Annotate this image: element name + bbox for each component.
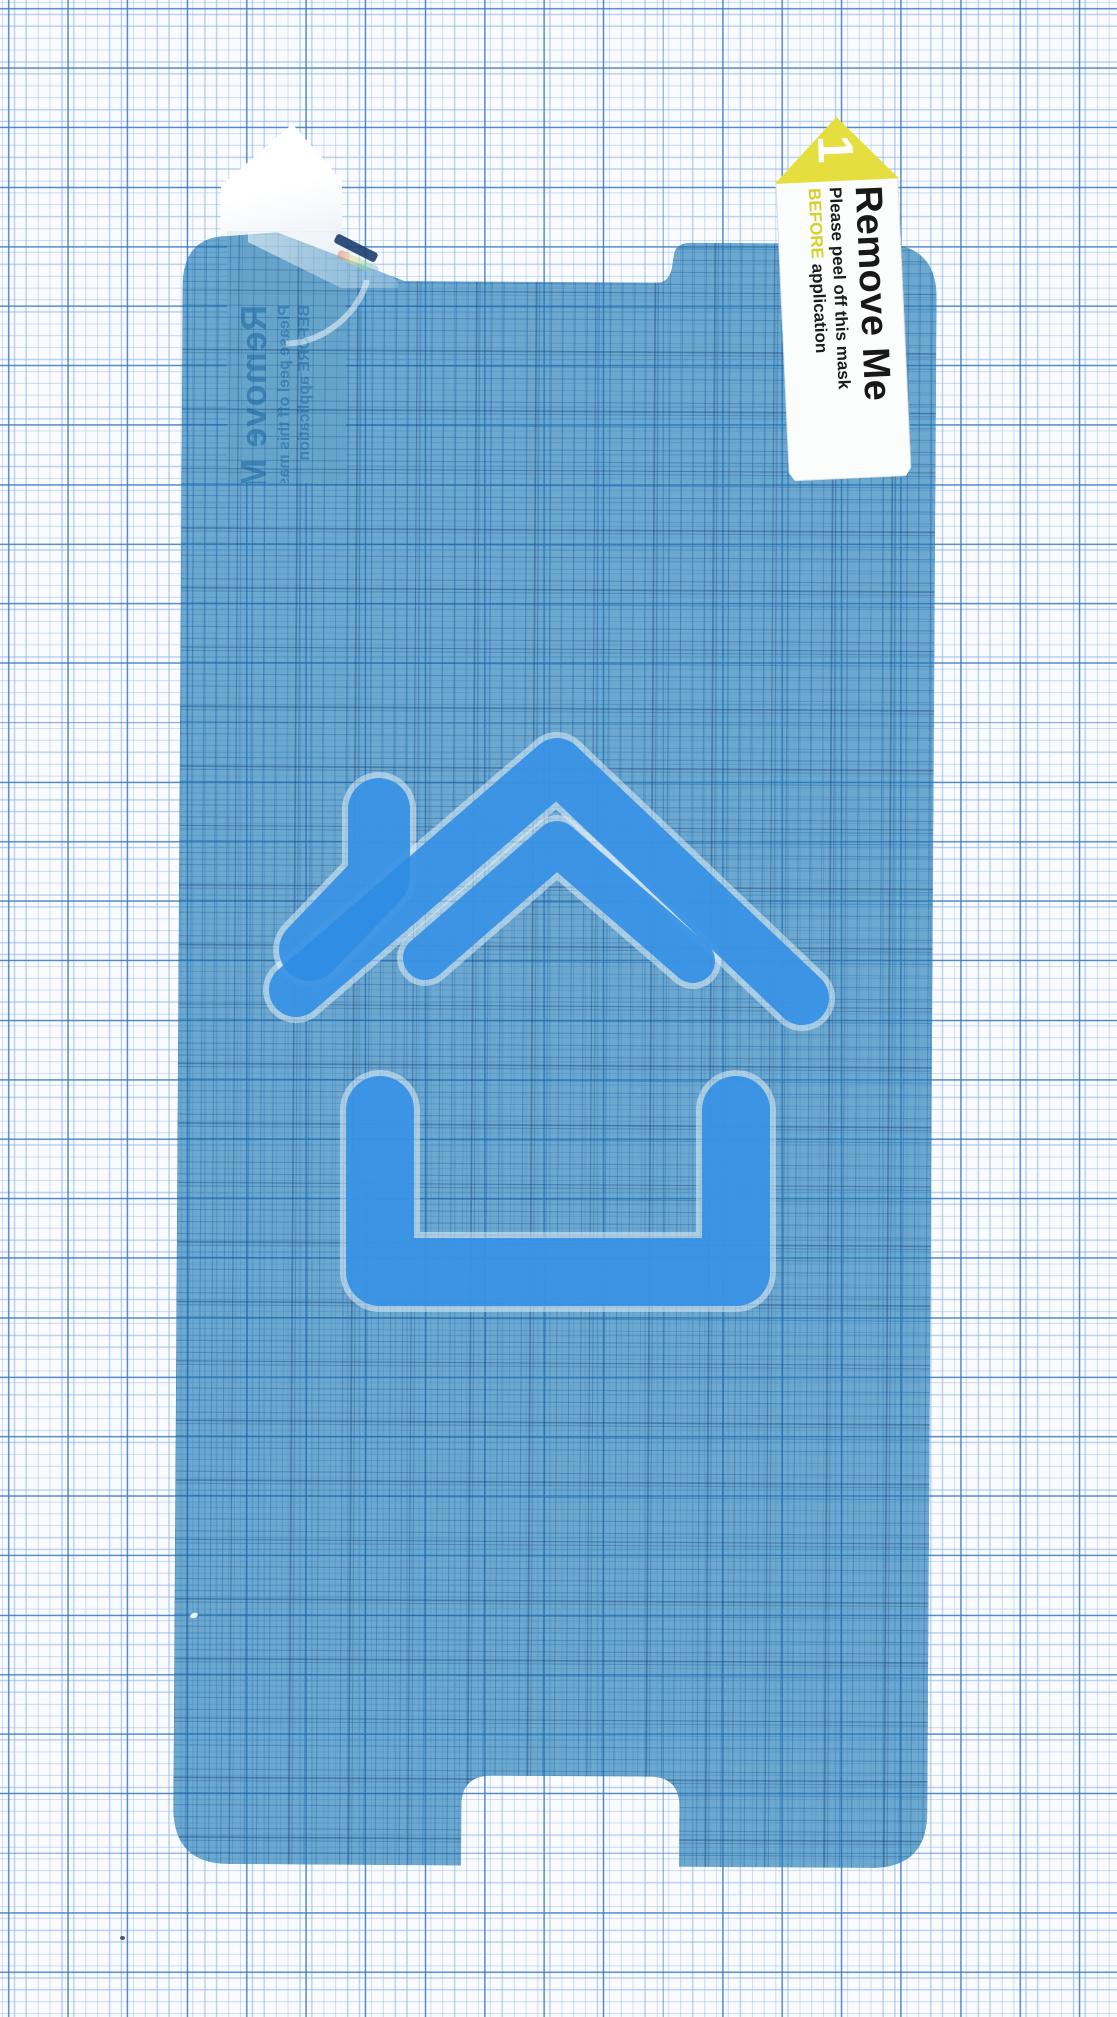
- label-text-block: Remove Me Please peel off this mask BEFO…: [804, 185, 904, 489]
- remove-me-label: 1 Remove Me Please peel off this mask BE…: [772, 114, 911, 481]
- before-word: BEFORE: [805, 188, 827, 260]
- left-pull-tab: [221, 124, 342, 236]
- label-yellow-arrow-section: 1: [772, 114, 898, 184]
- application-word: application: [808, 258, 831, 353]
- photo-scene: Remove Me Please peel off this mask BEFO…: [0, 0, 1117, 2017]
- dark-speck-on-paper: [120, 1936, 125, 1940]
